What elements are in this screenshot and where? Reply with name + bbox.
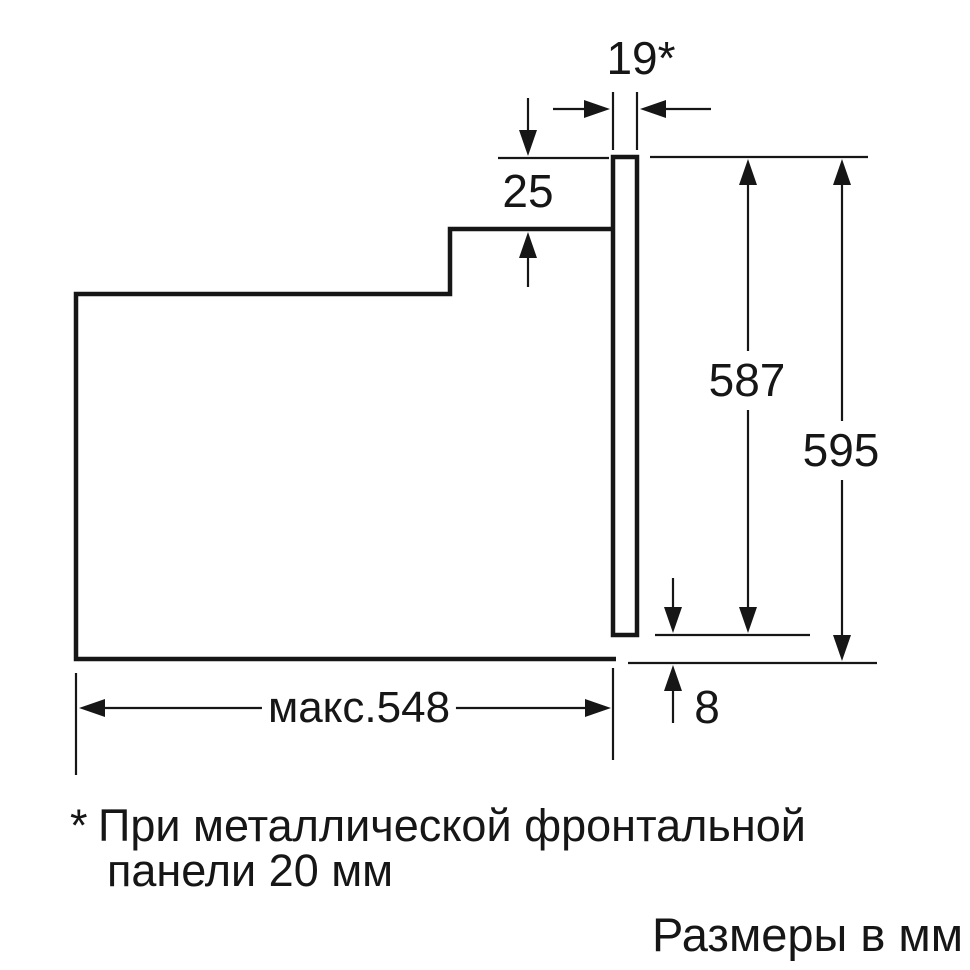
footnote-marker: * [70,803,98,893]
dim-8-arrows [664,578,682,723]
installation-diagram-page: 19* 25 587 595 8 макс.548 * При металлич… [0,0,970,970]
footnote-text: При металлической фронтальной панели 20 … [98,803,806,893]
dim-label-top-step: 25 [496,168,559,214]
dim-19-arrows [553,100,711,118]
footnote: * При металлической фронтальной панели 2… [70,803,806,893]
dim-label-total-height: 595 [797,427,886,473]
dim-label-front-gap: 19* [600,35,681,81]
footnote-line-2: панели 20 мм [98,848,806,893]
footnote-line-1: При металлической фронтальной [98,803,806,848]
oven-body-outline [76,229,616,659]
dim-595-line [833,159,851,661]
dim-label-bottom-gap: 8 [688,684,726,730]
oven-front-panel [613,157,637,635]
dim-label-inner-height: 587 [703,357,792,403]
reference-lines [76,92,877,775]
units-caption: Размеры в мм [652,911,963,958]
dim-label-max-depth: макс.548 [262,686,456,730]
